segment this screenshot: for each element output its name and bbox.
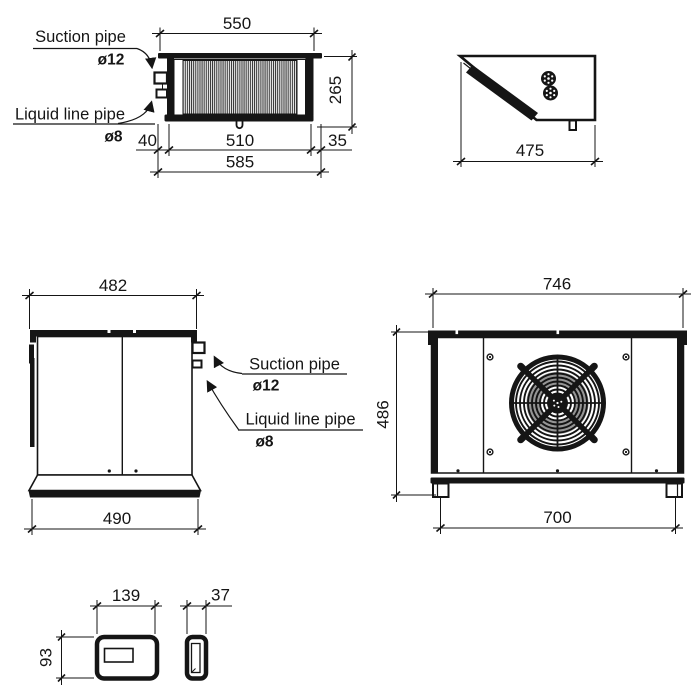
suction-leader-arrow <box>137 49 152 68</box>
dim-585: 585 <box>226 153 254 172</box>
liquid-leader-arrow <box>208 382 239 430</box>
liquid-pipe-label: Liquid line pipe <box>15 106 125 124</box>
dim-490: 490 <box>103 509 131 528</box>
rear-view-drawing <box>428 331 687 498</box>
control-box-front-drawing <box>97 637 157 679</box>
dim-482: 482 <box>99 276 127 295</box>
drain-stub <box>237 122 243 129</box>
technical-drawing: 550 265 40 510 35 585 Suction pipe ø12 L… <box>0 0 700 700</box>
suction-leader-arrow <box>215 357 243 374</box>
suction-pipe-stub <box>155 73 168 84</box>
vent-grommet-top <box>541 71 556 86</box>
dim-550: 550 <box>223 14 251 33</box>
display-window <box>105 649 134 663</box>
suction-pipe-label: Suction pipe <box>35 28 126 46</box>
front-view-drawing <box>29 330 205 498</box>
suction-pipe-label: Suction pipe <box>249 356 340 374</box>
liquid-diameter-label: ø8 <box>255 434 273 451</box>
front-view-callouts: Suction pipe ø12 Liquid line pipe ø8 <box>208 356 364 451</box>
dim-475: 475 <box>516 141 544 160</box>
dim-510: 510 <box>226 131 254 150</box>
side-view-drawing <box>460 56 595 130</box>
dim-265: 265 <box>326 76 345 104</box>
dim-93: 93 <box>37 648 56 667</box>
dim-40: 40 <box>138 131 157 150</box>
base-skirt <box>29 475 201 491</box>
dim-486: 486 <box>374 400 393 428</box>
dim-139: 139 <box>112 586 140 605</box>
dim-700: 700 <box>543 508 571 527</box>
top-view-callouts: Suction pipe ø12 Liquid line pipe ø8 <box>13 28 155 146</box>
suction-diameter-label: ø12 <box>253 378 280 395</box>
suction-pipe-stub <box>193 343 205 354</box>
top-view-drawing <box>155 53 323 128</box>
liquid-pipe-stub <box>193 361 202 368</box>
liquid-diameter-label: ø8 <box>104 129 122 146</box>
fan-grille <box>512 357 604 449</box>
dim-37: 37 <box>211 586 230 605</box>
dim-746: 746 <box>543 275 571 294</box>
condenser-coil-fins <box>183 61 297 115</box>
control-box-side-drawing <box>187 637 206 679</box>
side-foot-tab <box>570 121 577 131</box>
vent-grommet-bottom <box>543 86 558 101</box>
foot-right <box>667 484 683 498</box>
liquid-pipe-label: Liquid line pipe <box>245 411 355 429</box>
suction-diameter-label: ø12 <box>98 52 125 69</box>
liquid-pipe-stub <box>157 90 168 98</box>
drawing-sheet: 550 265 40 510 35 585 Suction pipe ø12 L… <box>0 0 700 700</box>
dim-35: 35 <box>328 131 347 150</box>
